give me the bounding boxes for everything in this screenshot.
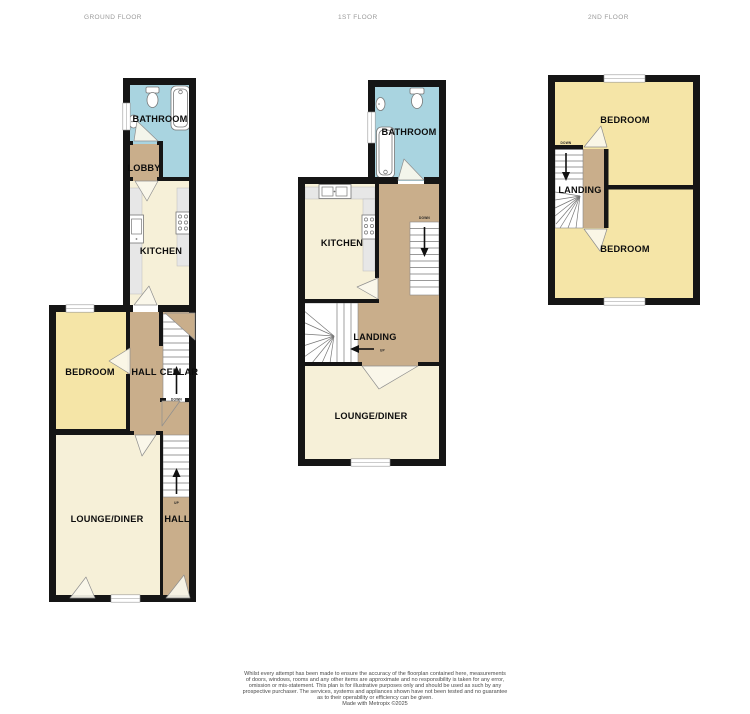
window bbox=[604, 298, 645, 305]
landing-stairs-direction: DOWN bbox=[561, 141, 572, 145]
landing-label: LANDING bbox=[353, 332, 396, 342]
floorplan-page: GROUND FLOOR 1ST FLOOR 2ND FLOOR bbox=[0, 0, 750, 714]
kitchen-sink-icon bbox=[130, 215, 144, 243]
window bbox=[66, 305, 94, 312]
down-stairs-icon: DOWN bbox=[410, 216, 439, 295]
ground-floor-plan: DOWN UP bbox=[45, 73, 203, 608]
toilet-icon bbox=[146, 87, 159, 108]
bathroom-label: BATHROOM bbox=[381, 127, 436, 137]
lounge-label: LOUNGE/DINER bbox=[71, 514, 144, 524]
second-floor-plan: DOWN BEDROOM LANDING BEDROOM bbox=[545, 70, 703, 310]
disclaimer: Whilst every attempt has been made to en… bbox=[0, 671, 750, 707]
kitchen-label: KITCHEN bbox=[140, 246, 182, 256]
first-floor-plan: DOWN UP bbox=[288, 75, 450, 470]
metropix-credit: Made with Metropix ©2025 bbox=[0, 701, 750, 707]
bathroom-label: BATHROOM bbox=[132, 114, 187, 124]
bedroom-label: BEDROOM bbox=[65, 367, 115, 377]
lobby-label: LOBBY bbox=[127, 163, 160, 173]
hall-upper-label: HALL bbox=[131, 367, 156, 377]
kitchen-sink-icon bbox=[319, 185, 351, 199]
window bbox=[368, 112, 375, 143]
winder-stairs-direction: UP bbox=[380, 349, 386, 353]
hob-icon bbox=[176, 212, 190, 234]
kitchen-label: KITCHEN bbox=[321, 238, 363, 248]
window bbox=[351, 459, 390, 466]
window bbox=[111, 595, 140, 602]
lounge-label: LOUNGE/DINER bbox=[335, 411, 408, 421]
down-stairs-direction: DOWN bbox=[419, 216, 430, 220]
ground-floor-title: GROUND FLOOR bbox=[84, 14, 142, 21]
first-floor-title: 1ST FLOOR bbox=[338, 14, 378, 21]
window bbox=[604, 75, 645, 82]
hall-stairs-icon: UP bbox=[163, 435, 190, 505]
toilet-icon bbox=[410, 88, 424, 109]
window bbox=[123, 103, 130, 130]
hob-icon bbox=[362, 215, 376, 239]
sink-icon bbox=[376, 98, 385, 111]
cellar-label: CELLAR bbox=[160, 367, 199, 377]
bedroom-front-label: BEDROOM bbox=[600, 115, 650, 125]
hall-stairs-direction: UP bbox=[174, 501, 180, 505]
bedroom-back-label: BEDROOM bbox=[600, 244, 650, 254]
hall-lower-label: HALL bbox=[164, 514, 189, 524]
landing-label: LANDING bbox=[558, 185, 601, 195]
second-floor-title: 2ND FLOOR bbox=[588, 14, 629, 21]
